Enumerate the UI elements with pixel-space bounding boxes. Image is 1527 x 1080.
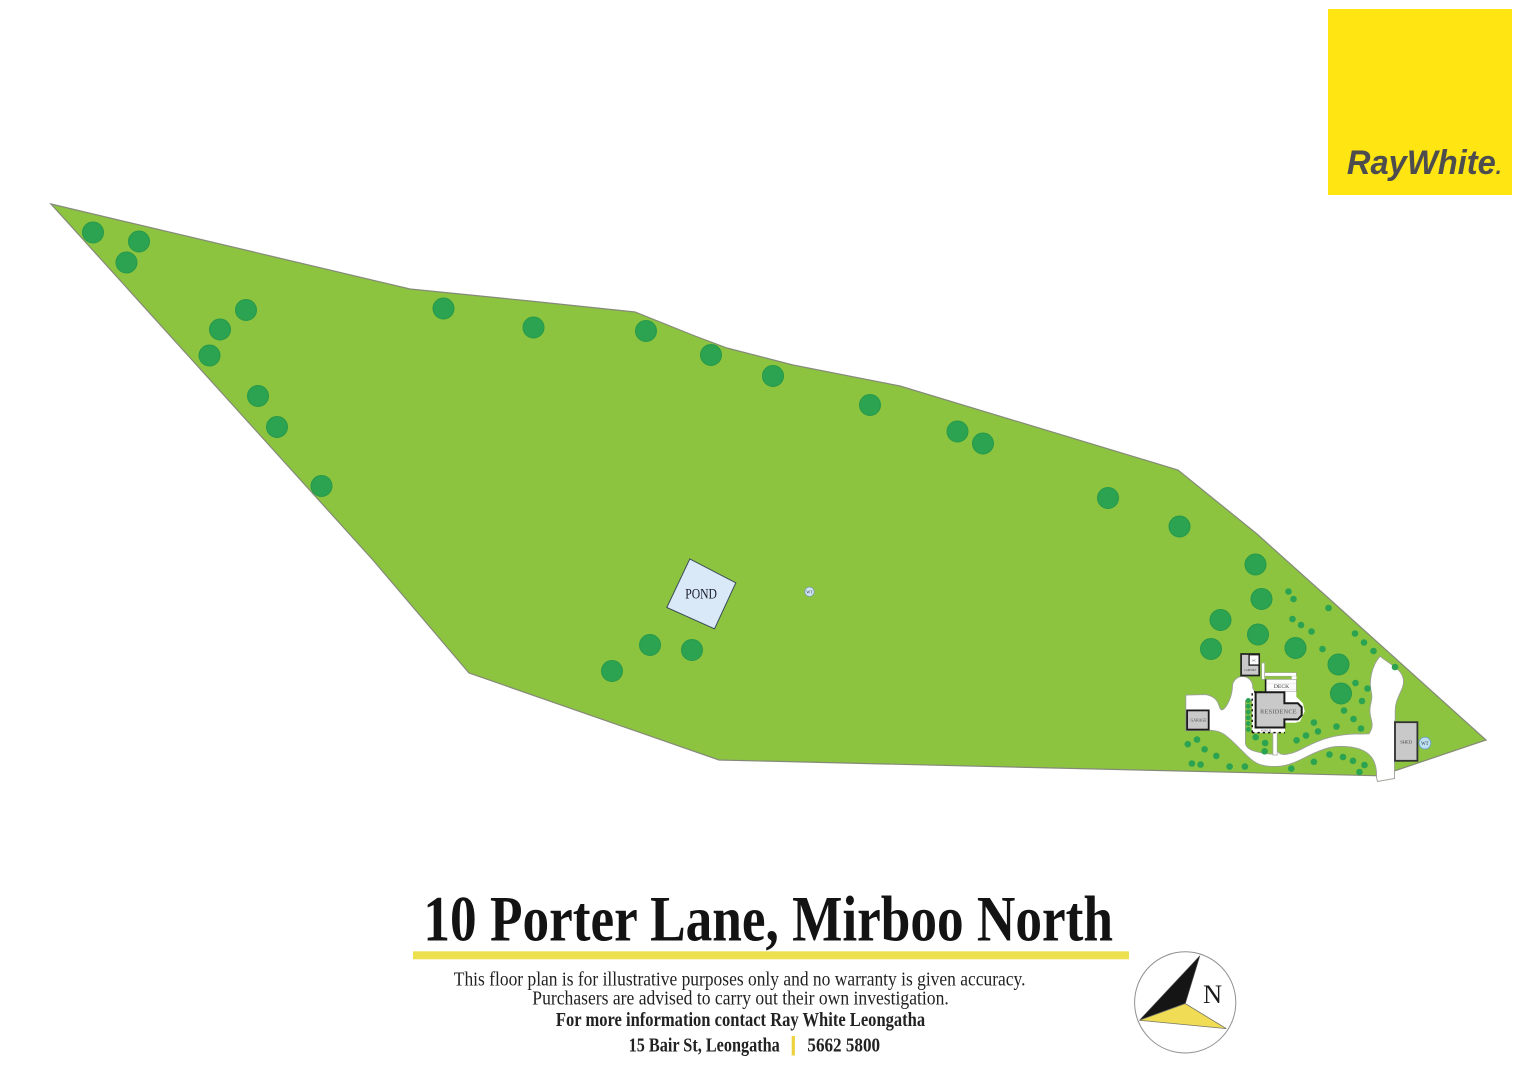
- svg-text:WT: WT: [806, 590, 813, 595]
- svg-text:Purchasers are advised to carr: Purchasers are advised to carry out thei…: [532, 987, 948, 1009]
- svg-text:WC: WC: [1252, 659, 1256, 662]
- svg-text:15 Bair St, Leongatha: 15 Bair St, Leongatha: [629, 1034, 780, 1056]
- svg-text:N: N: [1203, 979, 1222, 1009]
- svg-text:For more information contact R: For more information contact Ray White L…: [556, 1008, 925, 1030]
- svg-text:10 Porter Lane, Mirboo North: 10 Porter Lane, Mirboo North: [423, 882, 1113, 954]
- svg-text:RESIDENCE: RESIDENCE: [1260, 709, 1297, 716]
- svg-text:CARPORT: CARPORT: [1244, 669, 1256, 672]
- svg-text:RayWhite.: RayWhite.: [1347, 145, 1502, 183]
- svg-text:DECK: DECK: [1274, 684, 1289, 690]
- svg-text:SHED: SHED: [1400, 740, 1413, 745]
- svg-text:WT: WT: [1421, 742, 1429, 747]
- svg-text:5662 5800: 5662 5800: [807, 1034, 880, 1057]
- svg-text:PORCH: PORCH: [1261, 728, 1272, 732]
- svg-text:GARAGE: GARAGE: [1191, 717, 1208, 722]
- svg-text:POND: POND: [685, 585, 717, 602]
